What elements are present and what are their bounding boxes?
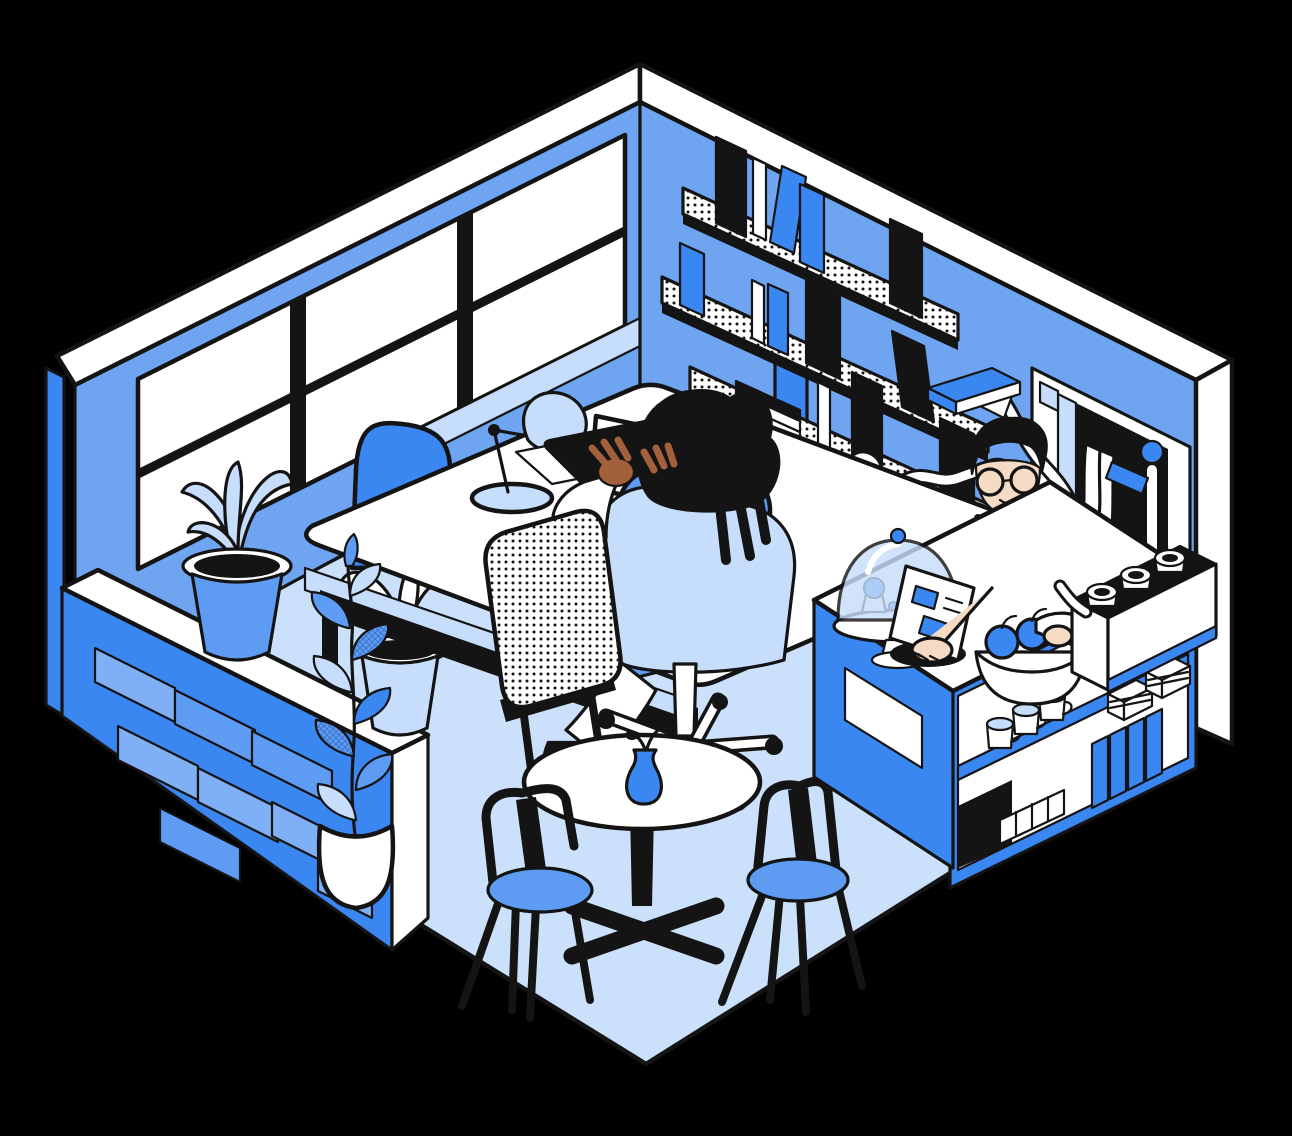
caster <box>765 737 783 755</box>
barista-hand <box>912 638 952 662</box>
twig-leaf <box>626 732 638 740</box>
dome-knob <box>891 529 905 543</box>
dotted-chair-back <box>485 511 620 707</box>
book-white <box>753 158 766 240</box>
book-blue <box>680 243 704 316</box>
book-white <box>752 280 764 344</box>
lamp-base <box>472 484 552 512</box>
chair-seat <box>488 868 592 912</box>
chair-pole <box>674 664 696 736</box>
barista-hand <box>1044 626 1072 646</box>
pot-soil <box>194 554 280 578</box>
tap-valve <box>1141 441 1163 463</box>
caster <box>712 694 728 710</box>
book-black <box>806 281 840 379</box>
cup <box>1155 550 1185 572</box>
towel-hook <box>1092 434 1100 442</box>
illustration-stage <box>0 0 1292 1136</box>
cafe-workspace-illustration <box>0 0 1292 1136</box>
twig-leaf <box>656 724 668 732</box>
half-wall-end-cap <box>392 735 428 950</box>
cup <box>1121 567 1151 589</box>
book-blue <box>768 284 788 355</box>
book-white <box>818 382 830 452</box>
glasses-bridge <box>1003 480 1011 481</box>
right-wall-endcap <box>1196 360 1232 744</box>
book-black <box>890 219 922 318</box>
pot <box>192 574 282 660</box>
book-black <box>716 137 746 237</box>
cup <box>1087 584 1117 606</box>
lamp-joint <box>488 424 500 436</box>
apple <box>986 626 1018 658</box>
chair-seat <box>748 859 848 901</box>
book-blue <box>800 184 824 273</box>
